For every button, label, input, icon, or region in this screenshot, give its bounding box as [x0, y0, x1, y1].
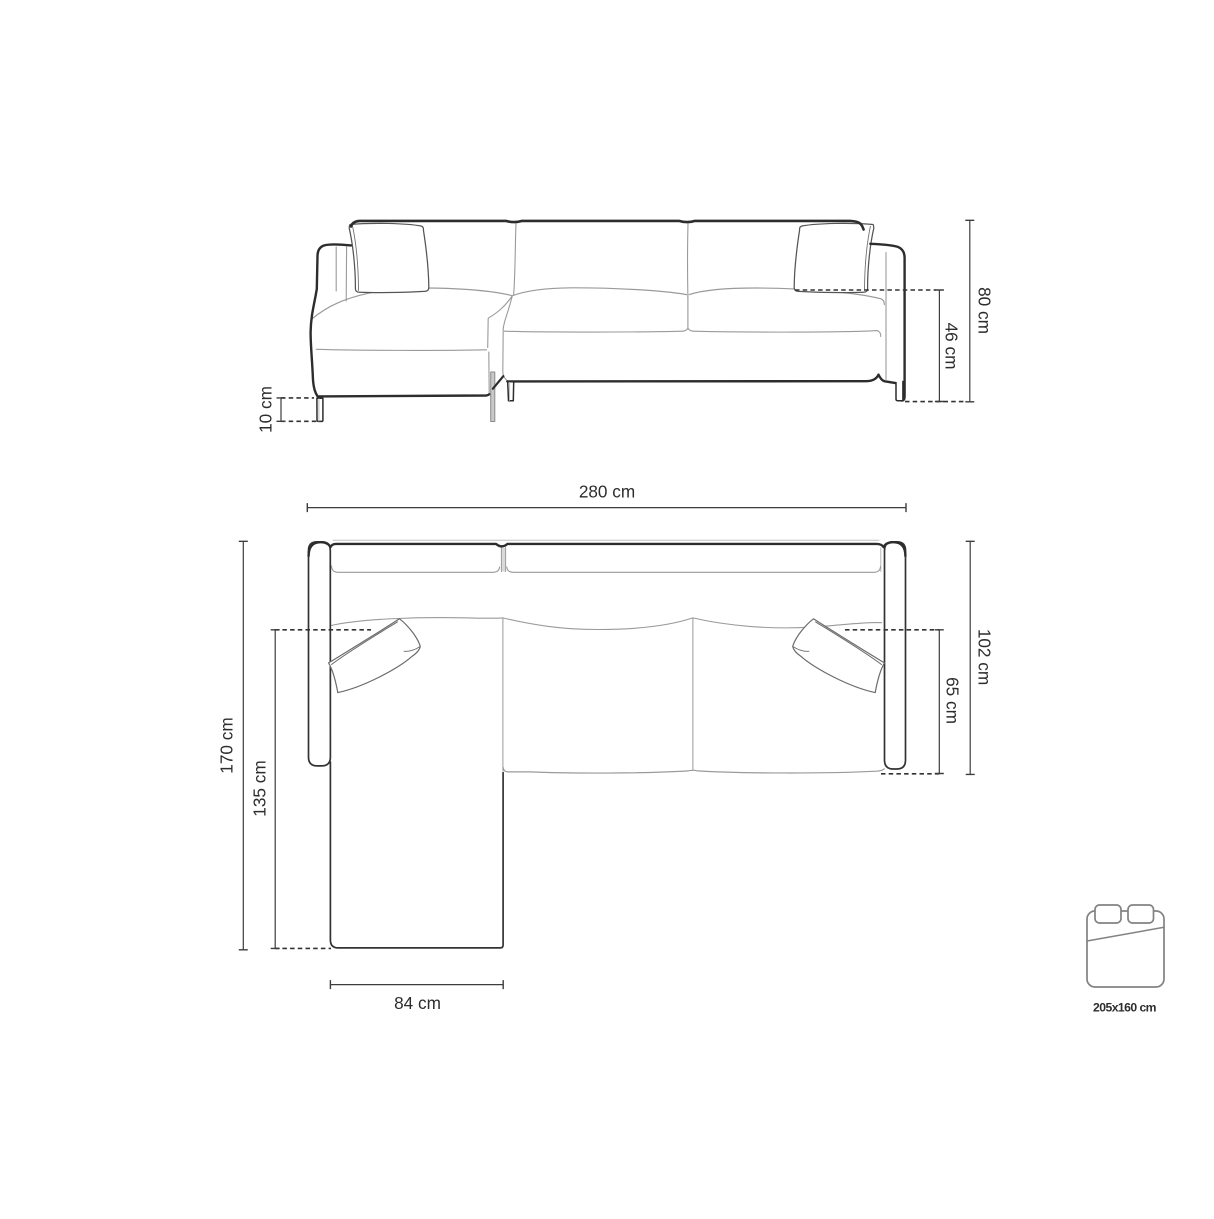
svg-text:170 cm: 170 cm	[217, 717, 237, 773]
svg-text:84 cm: 84 cm	[394, 993, 441, 1013]
svg-text:10 cm: 10 cm	[256, 386, 276, 433]
svg-text:135 cm: 135 cm	[250, 760, 270, 816]
svg-text:65 cm: 65 cm	[943, 677, 963, 724]
svg-text:102 cm: 102 cm	[975, 629, 995, 685]
svg-text:280 cm: 280 cm	[579, 482, 635, 502]
svg-text:80 cm: 80 cm	[975, 287, 995, 334]
svg-text:205x160 cm: 205x160 cm	[1093, 1001, 1157, 1015]
svg-text:46 cm: 46 cm	[942, 323, 962, 370]
